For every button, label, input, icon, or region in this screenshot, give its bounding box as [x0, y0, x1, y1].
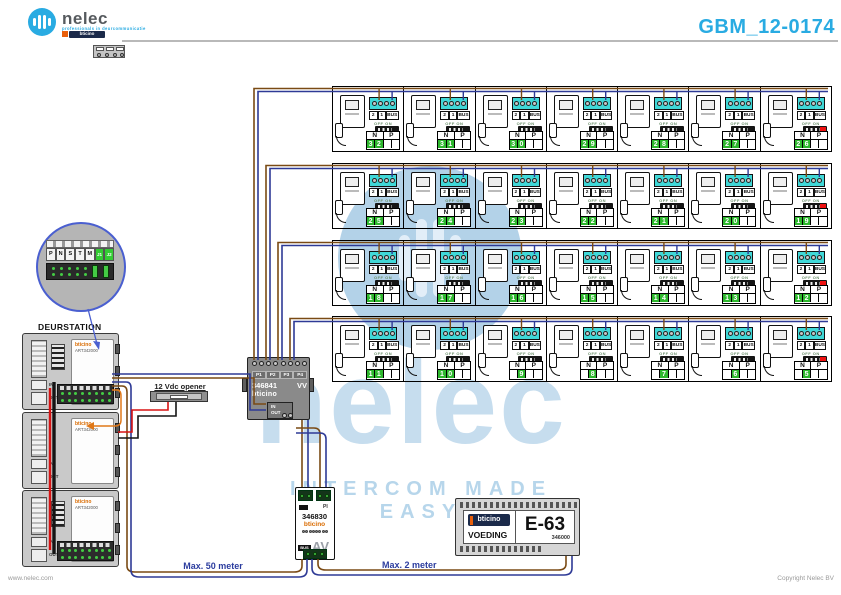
address-digit: 6	[803, 140, 811, 148]
deurstation-module-3: INOUTbticinoART342000	[22, 490, 119, 567]
terminal-label: 2	[369, 265, 378, 274]
np-cell	[392, 217, 399, 225]
terminal-screw	[514, 331, 519, 336]
np-cell	[526, 370, 534, 378]
np-cell	[819, 140, 826, 148]
dip-off-on-label: OFF ON	[374, 275, 392, 280]
adapter-dot	[325, 530, 328, 533]
bus-terminal	[797, 97, 825, 110]
distributor-screw	[295, 361, 300, 366]
terminal-labels: 21BUS	[725, 265, 755, 274]
distributor-ports: P1P2P3P4	[252, 371, 307, 379]
terminal-label: BUS	[529, 341, 542, 350]
terminal-labels: 21BUS	[583, 265, 613, 274]
adapter-led	[299, 505, 308, 510]
inset-label: J1	[95, 248, 105, 261]
dip-off-on-label: OFF ON	[588, 351, 606, 356]
footer-copyright: Copyright Nelec BV	[738, 575, 834, 582]
intercom-unit-17: 21BUSOFF ONNP17	[404, 241, 475, 305]
np-cell	[534, 294, 541, 302]
np-header: N	[367, 132, 384, 139]
terminal-screw	[799, 178, 804, 183]
np-header: N	[438, 286, 455, 293]
dip-off-on-label: OFF ON	[802, 351, 820, 356]
np-cell	[581, 370, 589, 378]
np-header: P	[597, 132, 613, 139]
np-terminal-block: NP25	[366, 208, 400, 227]
terminal-screw	[740, 101, 745, 106]
module-in-label: IN	[49, 382, 54, 387]
terminal-screw	[734, 255, 739, 260]
module-tab	[115, 388, 120, 398]
np-header: N	[510, 362, 527, 369]
grid-row: 21BUSOFF ONNP1121BUSOFF ONNP1021BUSOFF O…	[332, 316, 832, 382]
np-terminal-block: NP30	[509, 131, 543, 150]
np-terminal-block: NP10	[437, 361, 471, 380]
terminal-label: BUS	[742, 265, 755, 274]
terminal-screw	[597, 101, 602, 106]
terminal-labels: 21BUS	[369, 341, 399, 350]
bus-terminal	[725, 251, 753, 264]
inset-jumper-j1	[92, 265, 98, 278]
intercom-unit-7: 21BUSOFF ONNP7	[618, 317, 689, 381]
inset-screw-column	[52, 267, 55, 276]
bus-terminal	[440, 251, 468, 264]
address-digit: 2	[438, 217, 446, 225]
np-header: P	[740, 209, 756, 216]
np-header: N	[795, 209, 812, 216]
bus-terminal	[654, 97, 682, 110]
np-cell	[740, 140, 748, 148]
terminal-screw	[390, 101, 395, 106]
module-dip-switch	[51, 344, 65, 370]
terminal-label: 2	[654, 265, 663, 274]
module-terminal	[57, 384, 114, 404]
terminal-screw	[734, 101, 739, 106]
np-header: N	[438, 132, 455, 139]
terminal-label: BUS	[814, 265, 827, 274]
bus-terminal	[654, 251, 682, 264]
terminal-label: 1	[520, 111, 529, 120]
np-cell	[677, 294, 684, 302]
terminal-screw	[728, 255, 733, 260]
np-header: N	[723, 286, 740, 293]
terminal-screw	[669, 101, 674, 106]
dip-off-on-label: OFF ON	[730, 198, 748, 203]
np-header: N	[367, 286, 384, 293]
address-digit: 4	[660, 294, 668, 302]
np-cell	[811, 370, 819, 378]
dip-off-on-label: OFF ON	[730, 351, 748, 356]
intercom-unit-27: 21BUSOFF ONNP27	[689, 87, 760, 151]
np-terminal-block: NP24	[437, 208, 471, 227]
terminal-labels: 21BUS	[797, 341, 827, 350]
np-header: N	[367, 209, 384, 216]
terminal-label: BUS	[671, 111, 684, 120]
address-digit: 2	[795, 140, 803, 148]
dip-off-on-label: OFF ON	[445, 198, 463, 203]
terminal-label: 2	[797, 265, 806, 274]
terminal-label: BUS	[457, 341, 470, 350]
terminal-screw	[514, 178, 519, 183]
np-header: N	[795, 362, 812, 369]
terminal-screw	[378, 178, 383, 183]
terminal-label: 2	[725, 265, 734, 274]
intercom-unit-5: 21BUSOFF ONNP5	[761, 317, 831, 381]
distributor-in-out: IN OUT	[267, 402, 293, 419]
np-cell	[392, 294, 399, 302]
terminal-screw	[675, 331, 680, 336]
address-digit: 1	[367, 370, 375, 378]
module-tab	[115, 423, 120, 433]
terminal-labels: 21BUS	[512, 341, 542, 350]
dip-off-on-label: OFF ON	[730, 275, 748, 280]
inset-label: M	[85, 248, 95, 261]
np-cell	[392, 370, 399, 378]
terminal-screw	[532, 255, 537, 260]
terminal-screw	[449, 331, 454, 336]
np-cell	[740, 370, 748, 378]
deurstation-module-2: INOUTbticinoART342000	[22, 412, 119, 489]
deurstation-label: DEURSTATION	[38, 322, 101, 332]
np-terminal-block: NP22	[580, 208, 614, 227]
address-digit: 5	[803, 370, 811, 378]
np-terminal-block: NP8	[580, 361, 614, 380]
max-2-meter-note: Max. 2 meter	[382, 560, 492, 570]
np-header: N	[581, 286, 598, 293]
terminal-screw	[449, 178, 454, 183]
terminal-screw	[372, 255, 377, 260]
terminal-label: 1	[663, 265, 672, 274]
distributor-screws	[252, 361, 307, 366]
inset-label: N	[56, 248, 66, 261]
distributor-screw	[302, 361, 307, 366]
np-terminal-block: NP32	[366, 131, 400, 150]
np-terminal-block: NP28	[651, 131, 685, 150]
np-header: N	[723, 209, 740, 216]
terminal-screw	[811, 331, 816, 336]
terminal-screw	[805, 331, 810, 336]
terminal-labels: 21BUS	[440, 188, 470, 197]
address-digit: 2	[510, 217, 518, 225]
terminal-screw	[591, 255, 596, 260]
adapter-pi-label: PI	[323, 504, 328, 510]
np-header: N	[510, 209, 527, 216]
terminal-label: 2	[583, 111, 592, 120]
intercom-unit-15: 21BUSOFF ONNP15	[547, 241, 618, 305]
intercom-unit-31: 21BUSOFF ONNP31	[404, 87, 475, 151]
psu-brand: bticino	[468, 514, 510, 526]
terminal-screw	[597, 178, 602, 183]
distributor-screw	[273, 361, 278, 366]
np-header: N	[438, 362, 455, 369]
bus-terminal	[725, 327, 753, 340]
intercom-unit-21: 21BUSOFF ONNP21	[618, 164, 689, 228]
grid-row: 21BUSOFF ONNP1821BUSOFF ONNP1721BUSOFF O…	[332, 240, 832, 306]
terminal-label: 1	[734, 188, 743, 197]
terminal-screw	[443, 255, 448, 260]
module-tab	[115, 445, 120, 455]
module-tab	[115, 501, 120, 511]
dip-off-on-label: OFF ON	[588, 121, 606, 126]
terminal-label: 2	[512, 111, 521, 120]
terminal-label: 2	[512, 341, 521, 350]
np-cell	[811, 294, 819, 302]
address-digit: 0	[518, 140, 526, 148]
terminal-label: BUS	[386, 188, 399, 197]
terminal-screw	[526, 178, 531, 183]
inset-terminal-strip	[46, 263, 114, 280]
np-cell	[463, 370, 470, 378]
terminal-labels: 21BUS	[369, 111, 399, 120]
terminal-screw	[603, 255, 608, 260]
bus-terminal	[797, 327, 825, 340]
terminal-screw	[526, 331, 531, 336]
np-header: P	[526, 132, 542, 139]
terminal-screw	[591, 178, 596, 183]
address-digit: 5	[589, 294, 597, 302]
terminal-label: 2	[654, 188, 663, 197]
terminal-screw	[740, 255, 745, 260]
opener-label: 12 Vdc opener	[144, 382, 216, 391]
address-digit: 4	[447, 217, 455, 225]
np-header: P	[740, 362, 756, 369]
np-cell	[597, 370, 605, 378]
address-digit: 1	[660, 217, 668, 225]
terminal-label: 1	[734, 111, 743, 120]
terminal-label: 1	[520, 188, 529, 197]
terminal-screw	[746, 255, 751, 260]
terminal-label: 1	[520, 265, 529, 274]
terminal-labels: 21BUS	[369, 188, 399, 197]
terminal-labels: 21BUS	[797, 265, 827, 274]
grid-row: 21BUSOFF ONNP3221BUSOFF ONNP3121BUSOFF O…	[332, 86, 832, 152]
terminal-screw	[585, 255, 590, 260]
terminal-label: BUS	[742, 111, 755, 120]
np-header: P	[597, 362, 613, 369]
distributor-screw	[288, 361, 293, 366]
terminal-label: 1	[449, 111, 458, 120]
module-art-number: ART342000	[75, 427, 98, 432]
dip-off-on-label: OFF ON	[588, 198, 606, 203]
np-cell	[606, 217, 613, 225]
dip-off-on-label: OFF ON	[445, 121, 463, 126]
distributor-port-label: P2	[266, 371, 280, 379]
np-header: P	[526, 362, 542, 369]
terminal-label: 2	[583, 188, 592, 197]
terminal-label: 1	[378, 111, 387, 120]
address-digit: 3	[367, 140, 375, 148]
terminal-label: BUS	[529, 111, 542, 120]
module-connector	[31, 419, 47, 457]
terminal-labels: 21BUS	[583, 341, 613, 350]
wire	[118, 402, 176, 438]
bus-terminal	[512, 251, 540, 264]
terminal-label: 2	[797, 341, 806, 350]
terminal-screw	[526, 101, 531, 106]
np-cell	[819, 370, 826, 378]
np-header: N	[795, 132, 812, 139]
terminal-labels: 21BUS	[654, 188, 684, 197]
terminal-label: 1	[734, 341, 743, 350]
adapter-346830: PI 346830 bticino BUS AV	[295, 487, 335, 560]
terminal-label: BUS	[600, 341, 613, 350]
terminal-screw	[603, 331, 608, 336]
terminal-screw	[657, 178, 662, 183]
np-terminal-block: NP11	[366, 361, 400, 380]
dip-off-on-label: OFF ON	[659, 121, 677, 126]
np-cell	[677, 370, 684, 378]
bus-terminal	[654, 174, 682, 187]
np-cell	[534, 140, 541, 148]
terminal-screw	[585, 331, 590, 336]
module-tab	[115, 545, 120, 555]
terminal-label: 2	[512, 188, 521, 197]
bus-terminal	[369, 97, 397, 110]
address-digit: 3	[518, 217, 526, 225]
terminal-screw	[384, 101, 389, 106]
terminal-label: 1	[663, 111, 672, 120]
terminal-screw	[378, 331, 383, 336]
np-cell	[606, 294, 613, 302]
address-digit: 7	[447, 294, 455, 302]
terminal-label: 1	[805, 265, 814, 274]
np-cell	[463, 294, 470, 302]
adapter-dot	[318, 530, 321, 533]
intercom-unit-19: 21BUSOFF ONNP19	[761, 164, 831, 228]
intercom-unit-23: 21BUSOFF ONNP23	[476, 164, 547, 228]
terminal-labels: 21BUS	[512, 265, 542, 274]
np-cell	[723, 370, 731, 378]
np-header: N	[510, 132, 527, 139]
terminal-label: 2	[583, 265, 592, 274]
terminal-screw	[520, 178, 525, 183]
terminal-screw	[603, 178, 608, 183]
terminal-screw	[514, 101, 519, 106]
inset-screw-column	[60, 267, 63, 276]
terminal-label: 1	[591, 265, 600, 274]
terminal-label: 1	[378, 341, 387, 350]
address-digit: 8	[375, 294, 383, 302]
dip-off-on-label: OFF ON	[659, 198, 677, 203]
address-digit: 0	[732, 217, 740, 225]
terminal-screw	[675, 101, 680, 106]
terminal-screw	[455, 331, 460, 336]
terminal-screw	[669, 178, 674, 183]
dip-off-on-label: OFF ON	[374, 351, 392, 356]
np-header: P	[455, 286, 471, 293]
terminal-label: 1	[449, 188, 458, 197]
np-cell	[819, 217, 826, 225]
np-cell	[606, 370, 613, 378]
terminal-screw	[384, 255, 389, 260]
terminal-label: BUS	[671, 341, 684, 350]
terminal-screw	[585, 101, 590, 106]
diagram-page: nelec INTERCOM MADE EASY nelec professio…	[0, 0, 841, 595]
distributor-screw	[281, 361, 286, 366]
distributor-port-label: P4	[293, 371, 307, 379]
terminal-screw	[799, 255, 804, 260]
intercom-unit-32: 21BUSOFF ONNP32	[333, 87, 404, 151]
np-terminal-block: NP18	[366, 285, 400, 304]
psu-code: 346000	[552, 535, 570, 541]
distributor-346841: P1P2P3P4 346841 VV bticino IN OUT	[247, 357, 310, 420]
dip-off-on-label: OFF ON	[588, 275, 606, 280]
np-terminal-block: NP27	[722, 131, 756, 150]
module-art-number: ART342000	[75, 348, 98, 353]
intercom-unit-20: 21BUSOFF ONNP20	[689, 164, 760, 228]
terminal-label: 2	[583, 341, 592, 350]
np-header: P	[455, 132, 471, 139]
terminal-screw	[817, 178, 822, 183]
address-digit: 1	[795, 217, 803, 225]
np-header: N	[438, 209, 455, 216]
terminal-screw	[740, 331, 745, 336]
address-digit: 9	[803, 217, 811, 225]
np-header: P	[740, 132, 756, 139]
terminal-label: 2	[440, 111, 449, 120]
terminal-screw	[461, 255, 466, 260]
address-digit: 9	[518, 370, 526, 378]
np-cell	[748, 217, 755, 225]
terminal-label: 2	[440, 188, 449, 197]
intercom-unit-6: 21BUSOFF ONNP6	[689, 317, 760, 381]
terminal-screw	[811, 101, 816, 106]
np-cell	[677, 217, 684, 225]
module-connector	[31, 497, 47, 535]
bus-terminal	[583, 174, 611, 187]
address-digit: 1	[438, 370, 446, 378]
terminal-label: 2	[369, 188, 378, 197]
intercom-unit-16: 21BUSOFF ONNP16	[476, 241, 547, 305]
terminal-label: 2	[725, 188, 734, 197]
terminal-labels: 21BUS	[725, 188, 755, 197]
terminal-screw	[443, 331, 448, 336]
terminal-screw	[384, 178, 389, 183]
module-connector	[31, 340, 47, 378]
intercom-unit-18: 21BUSOFF ONNP18	[333, 241, 404, 305]
terminal-label: BUS	[529, 265, 542, 274]
np-cell	[652, 370, 660, 378]
inset-label: J2	[104, 248, 114, 261]
header-rule	[122, 40, 838, 42]
terminal-label: 1	[378, 188, 387, 197]
terminal-screw	[390, 255, 395, 260]
distributor-model: 346841	[252, 381, 277, 390]
terminal-labels: 21BUS	[583, 188, 613, 197]
adapter-brand: bticino	[296, 521, 333, 528]
np-header: P	[811, 286, 827, 293]
module-in-label: IN	[49, 539, 54, 544]
intercom-unit-9: 21BUSOFF ONNP9	[476, 317, 547, 381]
bus-terminal	[797, 174, 825, 187]
address-digit: 1	[447, 140, 455, 148]
terminal-label: BUS	[814, 111, 827, 120]
address-digit: 1	[510, 294, 518, 302]
terminal-screw	[657, 101, 662, 106]
module-dip-switch	[51, 501, 65, 527]
grid-row: 21BUSOFF ONNP2521BUSOFF ONNP2421BUSOFF O…	[332, 163, 832, 229]
terminal-screw	[657, 331, 662, 336]
terminal-label: 1	[449, 341, 458, 350]
terminal-label: 1	[663, 341, 672, 350]
address-digit: 2	[581, 140, 589, 148]
terminal-labels: 21BUS	[725, 341, 755, 350]
dip-off-on-label: OFF ON	[517, 351, 535, 356]
terminal-label: 2	[654, 111, 663, 120]
terminal-screw	[746, 101, 751, 106]
terminal-label: BUS	[386, 265, 399, 274]
